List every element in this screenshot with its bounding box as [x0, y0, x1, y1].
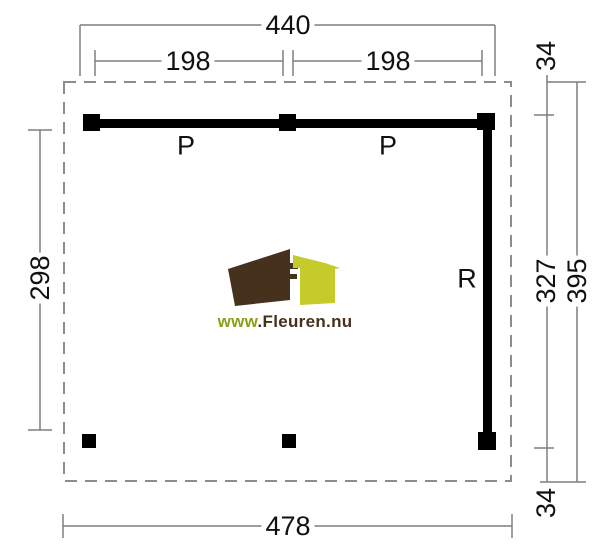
right-beam: [483, 119, 492, 449]
logo-url-domain: .Fleuren.nu: [258, 312, 353, 331]
fleuren-logo-icon: [228, 249, 340, 306]
dim-side-left-label: 298: [26, 252, 54, 303]
dim-top-bay-right-label: 198: [361, 47, 414, 75]
dim-top-total-label: 440: [261, 11, 314, 39]
dim-bottom-total-label: 478: [261, 512, 314, 540]
logo-house-brown: [228, 249, 298, 306]
logo-url-text: www.Fleuren.nu: [218, 312, 353, 332]
logo-url-www: www: [218, 312, 258, 331]
floorplan-drawing: 440 198 198 34 298 327 395 34 478 P P R …: [0, 0, 600, 550]
beam-label-r: R: [457, 266, 477, 293]
beam-label-p-left: P: [177, 133, 195, 160]
dim-overhang-top-right-label: 34: [532, 38, 560, 74]
beam-label-p-right: P: [379, 133, 397, 160]
logo-house-yellow: [293, 255, 340, 305]
post-top-right: [477, 113, 495, 130]
dim-overhang-bottom-right-label: 34: [532, 485, 560, 521]
dim-side-total-right-label: 395: [563, 255, 591, 306]
post-top-middle: [279, 114, 296, 131]
dim-top-bay-left-label: 198: [161, 47, 214, 75]
dim-top-bays-lines: [95, 50, 482, 76]
post-bottom-right: [478, 432, 496, 450]
post-top-left: [83, 114, 100, 131]
post-bottom-middle: [282, 434, 296, 448]
dim-side-inner-right-label: 327: [532, 255, 560, 306]
post-bottom-left: [82, 434, 96, 448]
floorplan-geometry: [0, 0, 600, 550]
